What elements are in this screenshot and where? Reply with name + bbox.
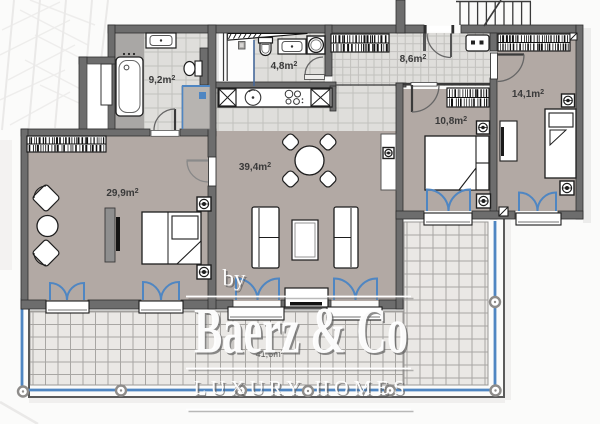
svg-text:4,8m2: 4,8m2 bbox=[271, 59, 298, 72]
svg-text:8,6m2: 8,6m2 bbox=[400, 52, 427, 65]
svg-text:Baerz & Co: Baerz & Co bbox=[194, 295, 408, 368]
svg-text:by: by bbox=[223, 266, 247, 291]
svg-text:39,4m2: 39,4m2 bbox=[239, 160, 271, 173]
svg-text:9,2m2: 9,2m2 bbox=[149, 73, 176, 86]
svg-text:10,8m2: 10,8m2 bbox=[435, 114, 467, 127]
svg-text:14,1m2: 14,1m2 bbox=[512, 87, 544, 100]
svg-text:29,9m2: 29,9m2 bbox=[106, 186, 138, 199]
